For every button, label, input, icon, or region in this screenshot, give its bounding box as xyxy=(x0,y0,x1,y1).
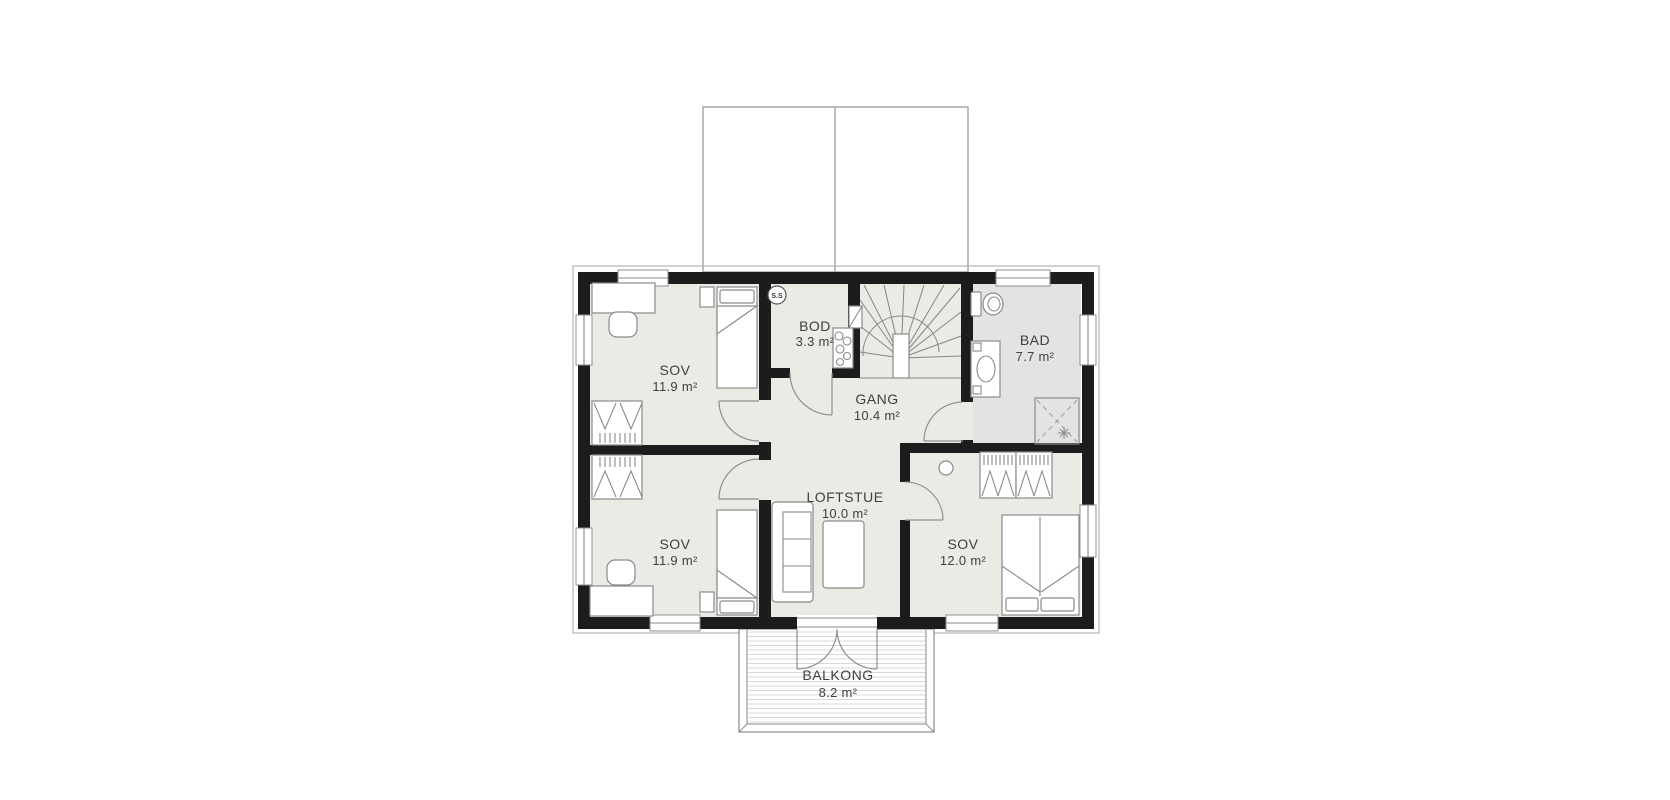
room-area: 10.4 m² xyxy=(854,408,901,423)
wall-bedroom2-hall-lower xyxy=(759,500,771,617)
nightstand xyxy=(700,592,714,612)
wall-loftstue-bedroom3-upper xyxy=(900,453,910,482)
floorplan-page: S.S SOV 11.9 m² BOD 3.3 m² BAD 7.7 m² GA… xyxy=(0,0,1670,800)
desk xyxy=(590,586,653,616)
room-area: 10.0 m² xyxy=(822,506,869,521)
window-top-bathroom xyxy=(996,270,1050,286)
wardrobe xyxy=(1016,452,1052,498)
window-left-bedroom1 xyxy=(576,315,592,365)
wardrobe xyxy=(980,452,1016,498)
single-bed xyxy=(717,510,757,615)
desk xyxy=(592,283,655,313)
room-area: 3.3 m² xyxy=(796,334,835,349)
ceiling-lamp xyxy=(939,461,953,475)
room-name: SOV xyxy=(659,362,690,378)
desk-chair xyxy=(609,312,637,337)
room-name: BAD xyxy=(1020,332,1050,348)
desk-chair xyxy=(607,560,635,585)
room-name: BALKONG xyxy=(802,667,873,683)
stair-newel xyxy=(893,334,909,378)
pillow xyxy=(1006,598,1038,611)
room-name: SOV xyxy=(659,536,690,552)
pillow xyxy=(720,290,754,303)
floorplan-svg: S.S SOV 11.9 m² BOD 3.3 m² BAD 7.7 m² GA… xyxy=(0,0,1670,800)
wardrobe xyxy=(592,401,642,445)
toilet xyxy=(971,292,1003,316)
wall-bod-bottom-left xyxy=(771,368,790,378)
pillow xyxy=(1041,598,1074,611)
smoke-detector-marker: S.S xyxy=(768,286,786,304)
wall-between-left-bedrooms xyxy=(590,445,759,455)
double-bed xyxy=(1002,515,1079,615)
wall-bedroom1-hall-mid xyxy=(759,442,771,460)
room-name: GANG xyxy=(855,391,898,407)
wall-loftstue-bedroom3-lower xyxy=(900,520,910,617)
room-area: 12.0 m² xyxy=(940,553,987,568)
balcony-door-opening xyxy=(797,615,877,631)
window-right-bedroom3 xyxy=(1080,505,1096,557)
window-bottom-bedroom2 xyxy=(650,615,700,631)
room-area: 11.9 m² xyxy=(652,379,698,394)
room-area: 11.9 m² xyxy=(652,553,698,568)
pillow xyxy=(720,601,754,613)
room-name: BOD xyxy=(799,318,831,334)
bathroom-vanity xyxy=(971,341,1000,397)
room-name: LOFTSTUE xyxy=(806,489,883,505)
single-bed xyxy=(717,287,757,388)
water-heater xyxy=(833,328,853,368)
coffee-table xyxy=(823,521,864,588)
window-right-bathroom xyxy=(1080,315,1096,365)
window-bottom-bedroom3 xyxy=(946,615,998,631)
wall-bod-bottom-right xyxy=(832,368,848,378)
wardrobe xyxy=(592,455,642,499)
roof-dormer-outline xyxy=(703,107,968,272)
nightstand xyxy=(700,287,714,307)
window-left-bedroom2 xyxy=(576,528,592,585)
room-label-bod: BOD 3.3 m² xyxy=(796,318,835,349)
wall-bedroom1-hall-upper xyxy=(759,284,771,400)
room-area: 7.7 m² xyxy=(1016,349,1055,364)
sofa xyxy=(772,502,813,602)
room-name: SOV xyxy=(947,536,978,552)
room-area: 8.2 m² xyxy=(819,685,858,700)
smoke-detector-label: S.S xyxy=(771,293,783,300)
